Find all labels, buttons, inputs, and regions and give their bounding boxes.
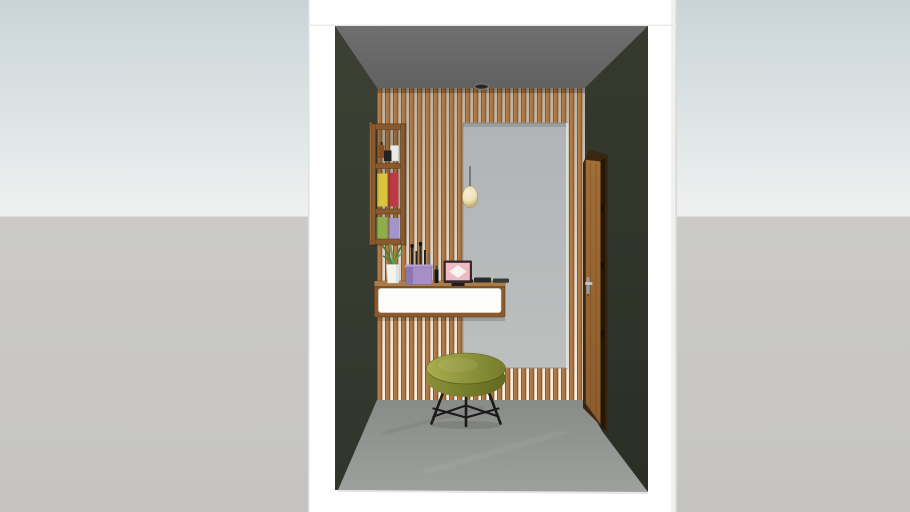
viewport-background [0,0,910,512]
black-box [384,151,392,162]
mirror-glass [463,123,568,368]
handle-keyhole [587,294,589,296]
stool-cushion-highlight [438,358,478,372]
book-spine-shade [389,173,390,207]
brush-tip [410,244,413,248]
brush [420,245,422,266]
shelf-left-board [371,124,376,245]
brush [424,250,426,266]
wall-shelf-unit [370,123,407,247]
shelf-right-board [401,124,406,245]
brush-tip [419,242,422,246]
tall-mirror [463,123,568,368]
door-hinge [601,205,604,212]
brush [428,253,430,266]
book-spine-shade [389,218,390,242]
book-spine-shade [377,174,378,207]
green-book [377,217,388,242]
door-inner-edge [601,158,606,431]
red-book [389,173,399,207]
shelf-divider [373,209,404,214]
lipstick-tube [435,270,439,284]
vanity-photo-frame [444,261,473,287]
pendant-shade [462,186,477,208]
shelf-divider [373,164,404,169]
mirror-top-shadow [463,123,568,127]
mirror-right-edge [566,123,568,368]
yellow-book [377,174,388,207]
room-interior [335,26,648,494]
palette [493,279,509,283]
floating-vanity-console [375,281,506,321]
console-top-edge [375,286,506,287]
ceiling-spotlight [474,84,488,89]
organizer-side [406,267,413,285]
white-box [391,146,399,162]
console-drawer-front [379,289,502,313]
section-box-left-edge [308,0,310,512]
model-viewport[interactable] [0,0,910,512]
handle-lever [585,282,593,285]
door-hinge [601,262,604,269]
door-hinge [601,330,604,337]
amber-jar [379,145,385,158]
shelf-top-board [371,124,405,130]
palette [474,278,491,283]
spotlight-lens [477,85,487,88]
shelf-bottom-board [371,239,405,245]
small-item [471,280,474,283]
section-box-top-edge [308,25,677,26]
section-box-right-edge [675,0,677,512]
book-spine-shade [377,217,378,242]
console-under-shadow [377,317,505,321]
brush [416,251,418,266]
brush [411,247,413,266]
handle-plate [587,277,590,294]
wooden-door [583,150,608,434]
lavender-book [389,218,400,242]
